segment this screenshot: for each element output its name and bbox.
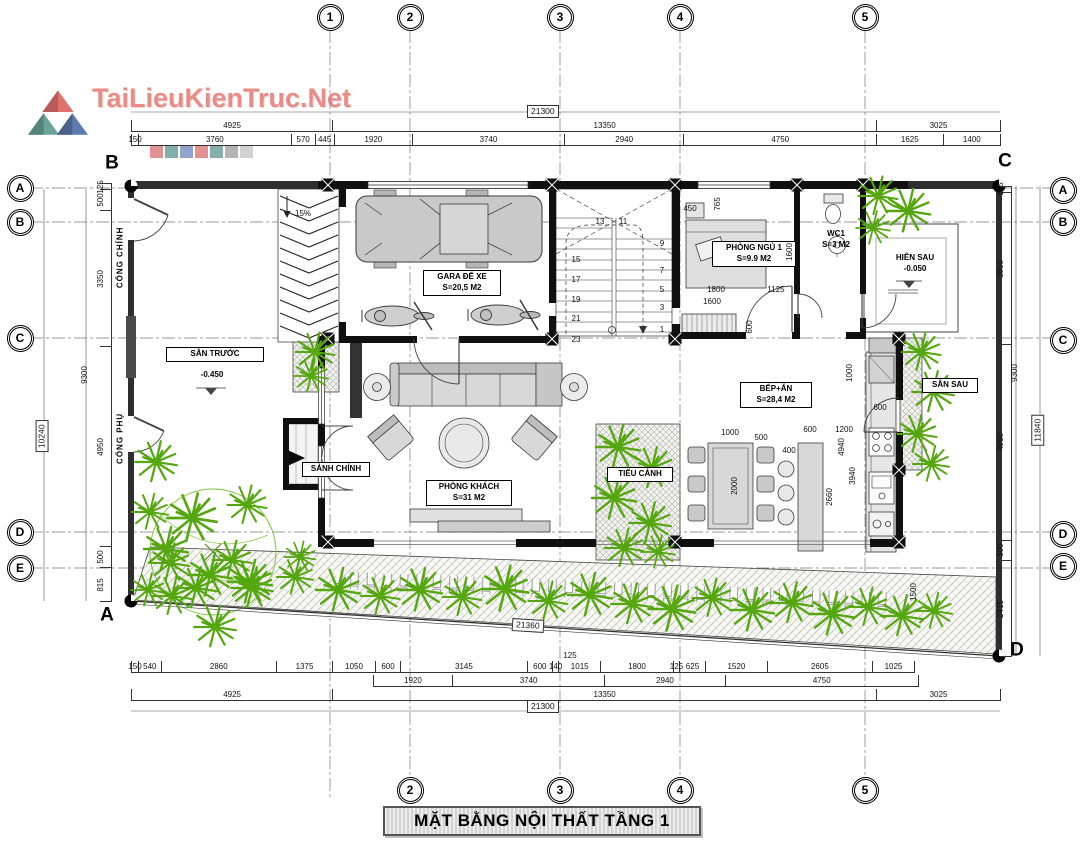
annotation: 15 [572,256,581,264]
drawing-title: MẶT BẰNG NỘI THẤT TẦNG 1 [383,806,701,836]
annotation: 600 [746,320,754,333]
annotation: 19 [572,296,581,304]
grid-bubble-5: 5 [852,4,879,31]
grid-bubble-5: 5 [852,777,879,804]
dim-segment: 500 [100,547,111,568]
garage-name: GARA ĐỂ XE [426,272,498,283]
dim-segment: 4925 [132,120,333,131]
feature-wall [350,342,362,418]
room-label-bedroom1: PHÒNG NGỦ 1 S=9.9 M2 [712,241,796,267]
annotation: 125 [563,652,576,660]
grid-bubble-B: B [7,209,34,236]
dim-segment: 1920 [374,675,453,686]
dim-total-right: 11840 [1031,415,1044,446]
annotation: 1600 [786,243,794,261]
kitchen-counter [866,338,896,552]
kitchen-name: BẾP+ĂN [743,384,809,395]
annotation: 13 [596,218,605,226]
annotation: 1500 [910,583,918,601]
dim-right-mid: 9300 [1011,364,1019,382]
annotation: 1600 [703,298,721,306]
kitchen-area: S=28,4 M2 [743,395,809,406]
dim-segment: 2605 [768,661,873,672]
dim-segment: 1015 [559,661,601,672]
annotation: 9 [660,240,664,248]
grid-bubble-D: D [7,519,34,546]
room-label-front-yard: SÂN TRƯỚC [166,347,264,362]
annotation: 7 [660,267,664,275]
room-label-back-porch: HIÊN SAU -0.050 [882,253,948,275]
back-porch-level: -0.050 [882,264,948,275]
grid-bubble-E: E [1050,553,1077,580]
dim-boundary-bottom: 21360 [512,618,544,632]
dim-total-top: 21300 [527,105,559,118]
room-label-wc1: WC1 S=3 M2 [814,229,858,251]
dim-segment: 1800 [601,661,674,672]
wc1-area: S=3 M2 [814,240,858,251]
dim-chain-bottom-1: 1505402860137510506003145600140101518001… [131,661,915,673]
motorbike-symbols [362,300,540,330]
grid-bubble-B: B [1050,209,1077,236]
main-hall-name: SẢNH CHÍNH [305,464,367,475]
label-side-gate: CỔNG PHỤ [116,408,127,468]
annotation: 600 [873,404,886,412]
dim-total-bottom: 21300 [527,700,559,713]
dim-segment: 1920 [335,134,413,145]
room-label-mini-garden: TIỂU CẢNH [607,467,673,482]
dim-segment: 150 [132,661,139,672]
annotation: 15% [295,210,311,218]
dim-segment: 13350 [333,120,877,131]
watermark-squares [150,145,253,158]
grid-bubble-3: 3 [547,4,574,31]
dim-segment: 3025 [877,120,1001,131]
bedroom1-name: PHÒNG NGỦ 1 [715,243,793,254]
dim-total-left: 10240 [36,420,49,452]
dim-chain-left: 12550033504950500815 [100,183,112,602]
wc1-name: WC1 [814,229,858,240]
dim-segment: 1520 [706,661,768,672]
dim-segment: 445 [316,134,335,145]
dim-segment: 1375 [277,661,333,672]
dim-segment: 1025 [873,661,915,672]
annotation: 1800 [707,286,725,294]
dim-segment: 3740 [453,675,606,686]
dim-segment: 625 [680,661,706,672]
dim-segment: 3025 [877,689,1001,700]
grid-bubble-4: 4 [667,777,694,804]
annotation: 3 [660,304,664,312]
back-porch [864,224,958,332]
annotation: 1000 [721,429,739,437]
garden-band [133,547,996,654]
dining-furniture [688,443,823,551]
dim-segment: 1625 [877,134,944,145]
annotation: 21 [572,315,581,323]
annotation: 11 [619,218,627,226]
annotation: 3940 [849,467,857,485]
boundary-corner-label-D: D [1010,641,1024,660]
dim-segment: 4750 [726,675,919,686]
room-label-back-yard: SÂN SAU [922,378,978,393]
dim-segment: 815 [100,568,111,602]
annotation: 1000 [846,364,854,382]
boundary-corner-label-B: B [105,154,119,173]
dim-segment: 2940 [565,134,685,145]
annotation: 1125 [767,286,784,294]
boundary-corner-label-A: A [100,606,114,625]
mini-garden-name: TIỂU CẢNH [610,469,670,480]
dim-chain-right: 125385049505002415 [1000,186,1012,657]
grid-bubble-3: 3 [547,777,574,804]
garage-area: S=20,5 M2 [426,283,498,294]
grid-bubble-2: 2 [397,4,424,31]
grid-bubble-A: A [1050,177,1077,204]
grid-bubble-C: C [1050,327,1077,354]
bedroom-furniture [682,203,766,333]
dim-left-mid: 9300 [81,366,89,384]
level-symbol-front-yard [196,388,226,395]
dim-segment: 2940 [605,675,725,686]
front-yard-level: -0.450 [184,370,240,381]
boundary-corner-label-C: C [998,152,1012,171]
dim-segment: 4950 [100,347,111,547]
bedroom1-area: S=9.9 M2 [715,254,793,265]
room-label-living-room: PHÒNG KHÁCH S=31 M2 [426,480,512,506]
annotation: 5 [660,286,664,294]
grid-bubble-4: 4 [667,4,694,31]
living-room-furniture [364,363,588,532]
annotation: 4940 [838,438,846,456]
room-label-kitchen: BẾP+ĂN S=28,4 M2 [740,382,812,408]
dim-segment: 1400 [944,134,1001,145]
dim-segment: 2860 [162,661,277,672]
dim-segment: 500 [100,190,111,211]
back-yard-name: SÂN SAU [925,380,975,391]
floor-plan-sheet: 4925133503025 15037605704451920374029404… [0,0,1080,852]
grid-bubble-1: 1 [317,4,344,31]
back-porch-name: HIÊN SAU [882,253,948,264]
dim-segment: 1050 [333,661,376,672]
dim-segment: 3740 [413,134,565,145]
living-room-area: S=31 M2 [429,493,509,504]
dim-chain-top-2: 4925133503025 [131,120,1001,132]
annotation: 500 [754,434,767,442]
dim-chain-top-3: 1503760570445192037402940475016251400 [131,134,1001,146]
annotation: 765 [714,197,722,210]
car-symbol [356,190,542,268]
annotation: 23 [572,336,581,344]
annotation: 400 [782,447,795,455]
dim-segment: 600 [376,661,401,672]
annotation: 2660 [826,488,834,506]
label-main-gate: CỔNG CHÍNH [116,222,127,292]
annotation: 2000 [731,477,739,495]
grid-bubble-2: 2 [397,777,424,804]
dim-segment: 140 [553,661,560,672]
living-room-name: PHÒNG KHÁCH [429,482,509,493]
annotation: 17 [572,276,581,284]
dim-chain-bottom-3: 4925133503025 [131,689,1001,701]
grid-bubble-A: A [7,175,34,202]
room-label-main-hall: SẢNH CHÍNH [302,462,370,477]
annotation: 1 [660,326,664,334]
dim-chain-bottom-2: 1920374029404750 [373,675,919,687]
annotation: 600 [803,426,816,434]
front-yard-name: SÂN TRƯỚC [169,349,261,360]
dim-segment: 13350 [333,689,877,700]
dim-segment: 3760 [139,134,292,145]
dim-segment: 4925 [132,689,333,700]
grid-bubble-C: C [7,325,34,352]
dim-segment: 4750 [684,134,877,145]
grid-bubble-D: D [1050,521,1077,548]
dim-segment: 150 [132,134,139,145]
dim-segment: 500 [1000,541,1011,562]
dim-segment: 3850 [1000,193,1011,345]
dim-segment: 3145 [401,661,528,672]
dim-segment: 540 [139,661,162,672]
grid-bubble-E: E [7,555,34,582]
annotation: 450 [683,205,696,213]
dim-segment: 3350 [100,211,111,347]
room-label-garage: GARA ĐỂ XE S=20,5 M2 [423,270,501,296]
annotation: 1200 [835,426,853,434]
dim-segment: 570 [292,134,316,145]
